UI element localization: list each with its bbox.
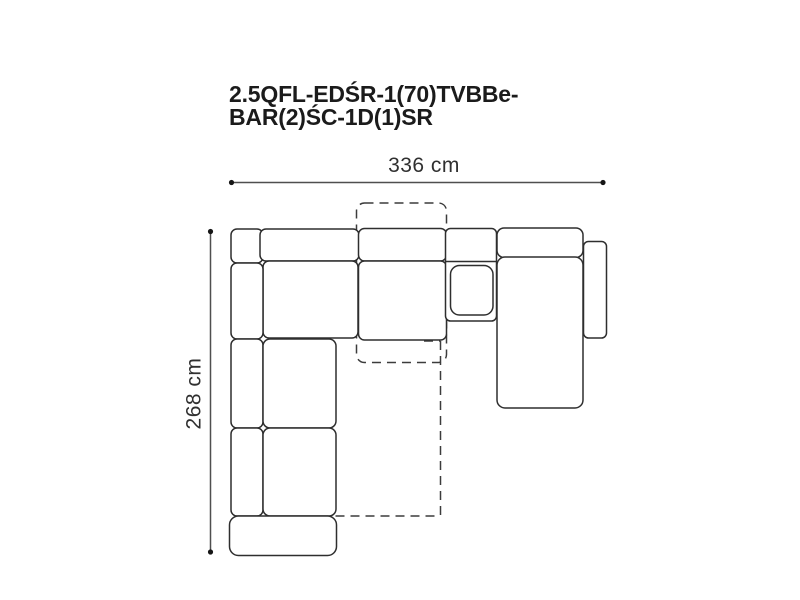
product-title-line2: BAR(2)ŚC-1D(1)SR xyxy=(229,106,518,129)
top-seat-middle xyxy=(359,261,447,340)
height-dimension-dot-bottom xyxy=(208,549,213,554)
left-backrest-2 xyxy=(231,339,263,428)
left-backrest-1 xyxy=(231,263,263,339)
front-ottoman xyxy=(230,516,337,556)
product-title-line1: 2.5QFL-EDŚR-1(70)TVBBe- xyxy=(229,83,518,106)
right-armrest xyxy=(584,242,607,339)
left-seat-1 xyxy=(263,339,336,428)
top-backrest-middle xyxy=(359,229,447,262)
chaise-backrest xyxy=(497,228,583,258)
corner-backrest xyxy=(231,229,263,263)
chaise-longue xyxy=(497,257,583,408)
left-seat-2 xyxy=(263,428,336,516)
top-seat-left xyxy=(263,261,358,338)
bar-tray xyxy=(451,266,494,316)
top-backrest-left xyxy=(260,229,359,261)
width-dimension-label: 336 cm xyxy=(234,154,614,178)
height-dimension-label: 268 cm xyxy=(183,334,208,454)
sofa-diagram-page: 2.5QFL-EDŚR-1(70)TVBBe- BAR(2)ŚC-1D(1)SR… xyxy=(0,0,800,600)
product-title: 2.5QFL-EDŚR-1(70)TVBBe- BAR(2)ŚC-1D(1)SR xyxy=(229,83,518,129)
height-dimension-dot-top xyxy=(208,229,213,234)
left-backrest-3 xyxy=(231,428,263,516)
width-dimension-dot-left xyxy=(229,180,234,185)
width-dimension-dot-right xyxy=(600,180,605,185)
